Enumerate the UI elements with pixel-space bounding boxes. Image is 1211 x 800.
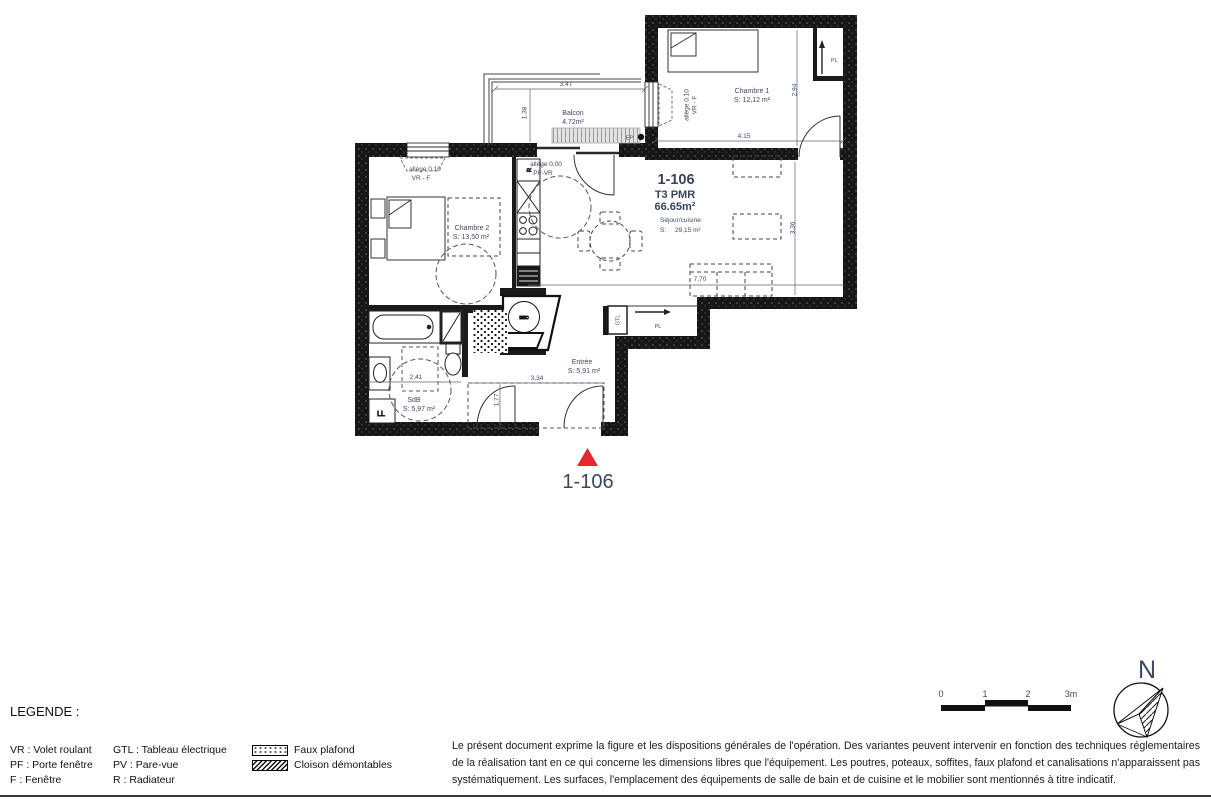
scale-bar: 0 1 2 3m bbox=[938, 689, 1077, 711]
legend-pf: PF : Porte fenêtre bbox=[10, 759, 93, 771]
chambre2-name: Chambre 2 bbox=[455, 225, 490, 232]
north-arrow: N bbox=[1114, 656, 1168, 737]
scale-3m: 3m bbox=[1065, 689, 1078, 699]
kitchen-sink-hob bbox=[517, 213, 540, 239]
room-entree: Entrée S: 5,91 m² bbox=[568, 359, 601, 375]
door-balcony bbox=[574, 155, 614, 195]
kitchen-cabinet bbox=[517, 253, 540, 266]
washing-machine-label: LL bbox=[377, 411, 385, 418]
unit-area: 66.65m² bbox=[655, 201, 696, 213]
sheet-bottom-border bbox=[0, 795, 1211, 797]
legend-r: R : Radiateur bbox=[113, 774, 175, 786]
dim-balcony-depth: 1.38 bbox=[522, 106, 529, 119]
chambre1-area: S: 12,12 m² bbox=[734, 97, 771, 104]
allege-note-2b: PF-VR bbox=[533, 170, 553, 177]
legend-pv: PV : Pare-vue bbox=[113, 759, 178, 771]
dim-chambre1-width: 4.15 bbox=[738, 133, 751, 140]
entry-closet-label: PL bbox=[655, 324, 662, 330]
water-heater: BEC bbox=[503, 296, 560, 350]
dim-sdb-width: 2,41 bbox=[410, 374, 423, 381]
sdb-clearance bbox=[402, 347, 438, 391]
marker-label: 1-106 bbox=[562, 471, 613, 493]
sejour-name: Séjour/cuisine bbox=[660, 217, 701, 224]
entree-name: Entrée bbox=[572, 359, 593, 366]
cloison-swatch bbox=[252, 760, 288, 771]
toilet bbox=[445, 344, 461, 375]
balcon-name: Balcon bbox=[562, 110, 584, 117]
scale-0: 0 bbox=[938, 689, 943, 699]
room-chambre1: Chambre 1 S: 12,12 m² bbox=[734, 88, 771, 104]
ep-label: EP bbox=[626, 136, 634, 142]
shutter-marks bbox=[400, 84, 672, 171]
entree-area: S: 5,91 m² bbox=[568, 368, 601, 375]
chambre1-name: Chambre 1 bbox=[735, 88, 770, 95]
door-opening-chambre1 bbox=[798, 148, 840, 160]
legend-gtl: GTL : Tableau électrique bbox=[113, 744, 227, 756]
north-label: N bbox=[1138, 656, 1156, 684]
unit-info-block: 1-106 T3 PMR 66.65m² Séjour/cuisine S: 2… bbox=[655, 172, 702, 234]
room-chambre2: Chambre 2 S: 13,50 m² bbox=[453, 225, 490, 241]
bed-chambre1 bbox=[668, 30, 758, 72]
bec-label: BEC bbox=[519, 315, 529, 320]
room-sdb: SdB S: 5,97 m² bbox=[403, 397, 436, 413]
entry-closet: PL bbox=[628, 306, 697, 330]
sdb-area: S: 5,97 m² bbox=[403, 406, 436, 413]
unit-type: T3 PMR bbox=[655, 189, 695, 201]
legend-faux-plafond: Faux plafond bbox=[294, 744, 355, 756]
dim-chambre1-depth: 2,94 bbox=[792, 83, 799, 96]
window-chambre2 bbox=[407, 143, 449, 157]
legend-f: F : Fenêtre bbox=[10, 774, 61, 786]
dim-sejour-depth: 3,36 bbox=[790, 221, 797, 234]
sliding-door-balcony bbox=[537, 144, 619, 156]
sejour-area: 29,15 m² bbox=[675, 227, 701, 234]
dim-sejour-width: 7,70 bbox=[694, 276, 707, 283]
allege-note-2: allège 0,00 bbox=[530, 161, 562, 168]
allege-note-1: allège 0.10 bbox=[409, 166, 441, 173]
sideboard bbox=[733, 156, 781, 239]
floor-plan-sheet: EP R bbox=[0, 0, 1211, 800]
dim-entree-depth: 1,77 bbox=[494, 393, 501, 406]
allege-note-3b: VR - F bbox=[692, 96, 699, 115]
allege-note-3: allège 0.10 bbox=[684, 89, 691, 121]
door-entry bbox=[564, 386, 603, 428]
radiator-label: R bbox=[527, 168, 533, 172]
unit-id: 1-106 bbox=[657, 172, 694, 188]
scale-2: 2 bbox=[1025, 689, 1030, 699]
legend-cloison: Cloison démontables bbox=[294, 759, 392, 771]
window-chambre1 bbox=[645, 82, 658, 127]
scale-1: 1 bbox=[982, 689, 987, 699]
entry-clearance bbox=[468, 383, 604, 428]
faux-plafond-swatch bbox=[252, 745, 288, 756]
kitchen-units: R bbox=[517, 159, 540, 286]
unit-marker: 1-106 bbox=[562, 448, 613, 493]
allege-note-1b: VR - F bbox=[412, 175, 431, 182]
sdb-name: SdB bbox=[407, 397, 421, 404]
dim-entree-width: 3,34 bbox=[531, 375, 544, 382]
legend-title: LEGENDE : bbox=[10, 704, 79, 719]
faux-plafond-area bbox=[473, 310, 508, 353]
sejour-area-prefix: S: bbox=[660, 227, 666, 234]
closets: GTL PL PL bbox=[608, 40, 838, 334]
floor-plan-drawing: EP R bbox=[0, 0, 1211, 800]
gtl-label: GTL bbox=[616, 315, 622, 326]
room-balcon: Balcon 4.72m² bbox=[562, 110, 584, 126]
disclaimer-text: Le présent document exprime la figure et… bbox=[452, 738, 1200, 789]
gtl-cabinet: GTL bbox=[608, 306, 627, 334]
dining-table bbox=[578, 212, 642, 270]
dim-balcony-width: 3.47 bbox=[560, 81, 573, 88]
marker-triangle bbox=[577, 448, 598, 466]
legend-vr: VR : Volet roulant bbox=[10, 744, 92, 756]
kitchen-cabinet bbox=[517, 239, 540, 253]
bathtub-inner bbox=[373, 315, 433, 339]
chambre2-area: S: 13,50 m² bbox=[453, 234, 490, 241]
bed-chambre2 bbox=[371, 197, 445, 260]
balcon-area: 4.72m² bbox=[562, 119, 584, 126]
chambre1-closet: PL bbox=[819, 40, 838, 74]
chambre1-closet-label: PL bbox=[831, 58, 838, 64]
